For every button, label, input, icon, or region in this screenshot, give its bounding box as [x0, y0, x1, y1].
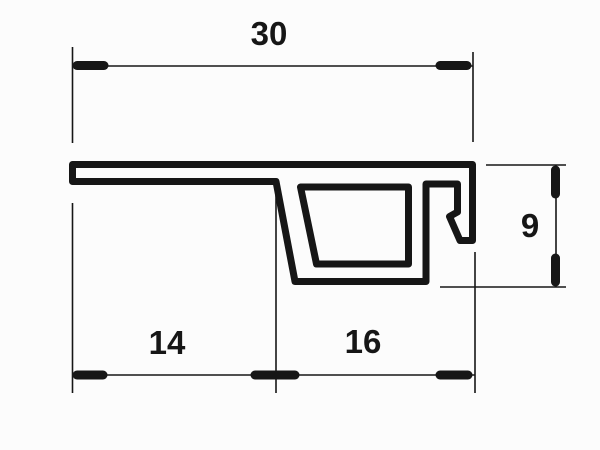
profile-shape: [73, 165, 473, 282]
drawing-sheet: 30 14 16 9: [0, 0, 600, 450]
technical-drawing: 30 14 16 9: [0, 0, 600, 450]
dimension-label-flange-width: 14: [149, 324, 186, 361]
dimension-channel-width: 16: [276, 252, 475, 393]
dimension-total-width: 30: [73, 15, 474, 143]
profile-channel-hole-outline: [301, 187, 409, 264]
dimension-label-total-width: 30: [251, 15, 288, 52]
dimension-label-channel-width: 16: [345, 323, 382, 360]
dimension-flange-width: 14: [73, 192, 296, 393]
dimension-label-height: 9: [521, 207, 539, 244]
profile-outer-outline: [73, 165, 473, 282]
